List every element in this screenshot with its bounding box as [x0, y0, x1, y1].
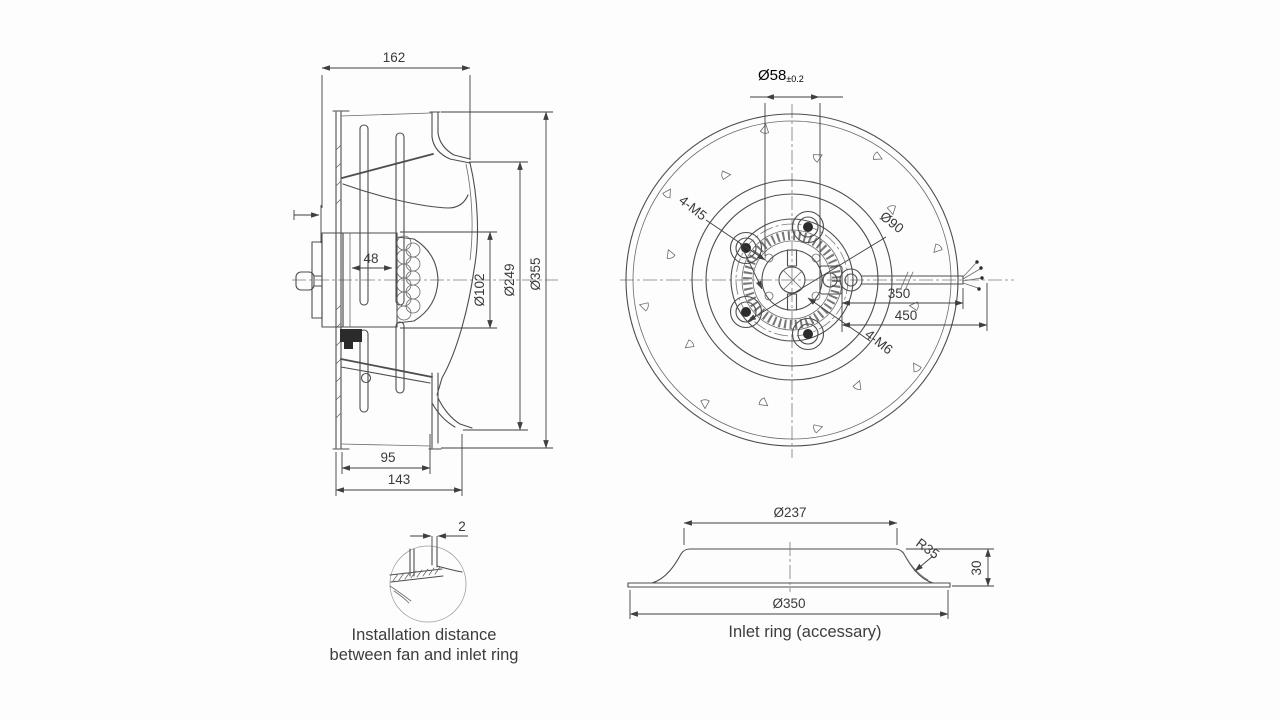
- inlet-ring-profile: [628, 542, 950, 592]
- label-holes-m5-text: 4-M5: [676, 193, 709, 224]
- dim-installation-gap-label: 2: [458, 519, 466, 534]
- detail-caption-line1: Installation distance: [352, 626, 497, 644]
- inlet-ring-drawing: Ø237 R35 30 Ø350 Inlet ring (accessary): [628, 505, 994, 641]
- fan-technical-drawing: 162 48 Ø102 Ø249 Ø355 95: [0, 0, 1280, 720]
- detail-view-drawing: 2 Installation distance between fan and …: [330, 519, 519, 664]
- vent-triangles: [638, 124, 943, 433]
- detail-caption-line2: between fan and inlet ring: [330, 646, 519, 664]
- dim-bolt-circle-label: Ø90: [877, 209, 906, 237]
- detail-bubble: [390, 546, 466, 622]
- dim-ring-outer-diameter-label: Ø350: [772, 596, 805, 611]
- dim-hub-circle-label: Ø58±0.2: [758, 67, 804, 84]
- dim-ring-inner-diameter-label: Ø237: [773, 505, 806, 520]
- side-view-drawing: 162 48 Ø102 Ø249 Ø355 95: [292, 50, 558, 496]
- dim-ring-outer-diameter: Ø350: [630, 590, 948, 619]
- dim-hub-circle: Ø58±0.2: [750, 67, 843, 270]
- inlet-bell-bottom: [341, 359, 472, 449]
- dim-rim-depth-label: 95: [380, 450, 395, 465]
- dim-ring-fillet: R35: [913, 535, 942, 571]
- dim-housing-depth: 143: [336, 434, 462, 496]
- dim-ring-inner-diameter: Ø237: [684, 505, 897, 545]
- power-cable: [862, 260, 984, 290]
- inlet-ring-caption: Inlet ring (accessary): [728, 623, 881, 641]
- dim-bolt-circle: Ø90: [748, 209, 907, 321]
- gap-tick-dimension: [294, 205, 321, 243]
- dim-motor-diameter-label: Ø102: [472, 273, 487, 306]
- dim-ring-height-label: 30: [969, 560, 984, 575]
- detail-section: [390, 548, 462, 603]
- dim-housing-depth-label: 143: [388, 472, 411, 487]
- terminal-block: [340, 329, 362, 342]
- front-view-drawing: Ø58±0.2 4-M5 Ø90 4-M6 350: [620, 67, 1014, 458]
- motor-winding: [397, 236, 438, 323]
- dim-cable-450-label: 450: [895, 308, 918, 323]
- dim-cable-450: 450: [842, 283, 987, 331]
- dim-motor-depth: 48: [352, 251, 392, 268]
- dim-cable-350-label: 350: [888, 286, 911, 301]
- dim-impeller-diameter-label: Ø355: [528, 257, 543, 290]
- shroud-contour-inner: [466, 164, 472, 260]
- dim-overall-depth-label: 162: [383, 50, 406, 65]
- dim-inlet-diameter-label: Ø249: [502, 263, 517, 296]
- dim-rim-depth: 95: [342, 434, 430, 474]
- dim-installation-gap: 2: [410, 519, 468, 548]
- dim-motor-depth-label: 48: [363, 251, 378, 266]
- label-bolts-m6-text: 4-M6: [862, 327, 895, 358]
- technical-drawing-page: 162 48 Ø102 Ø249 Ø355 95: [0, 0, 1280, 720]
